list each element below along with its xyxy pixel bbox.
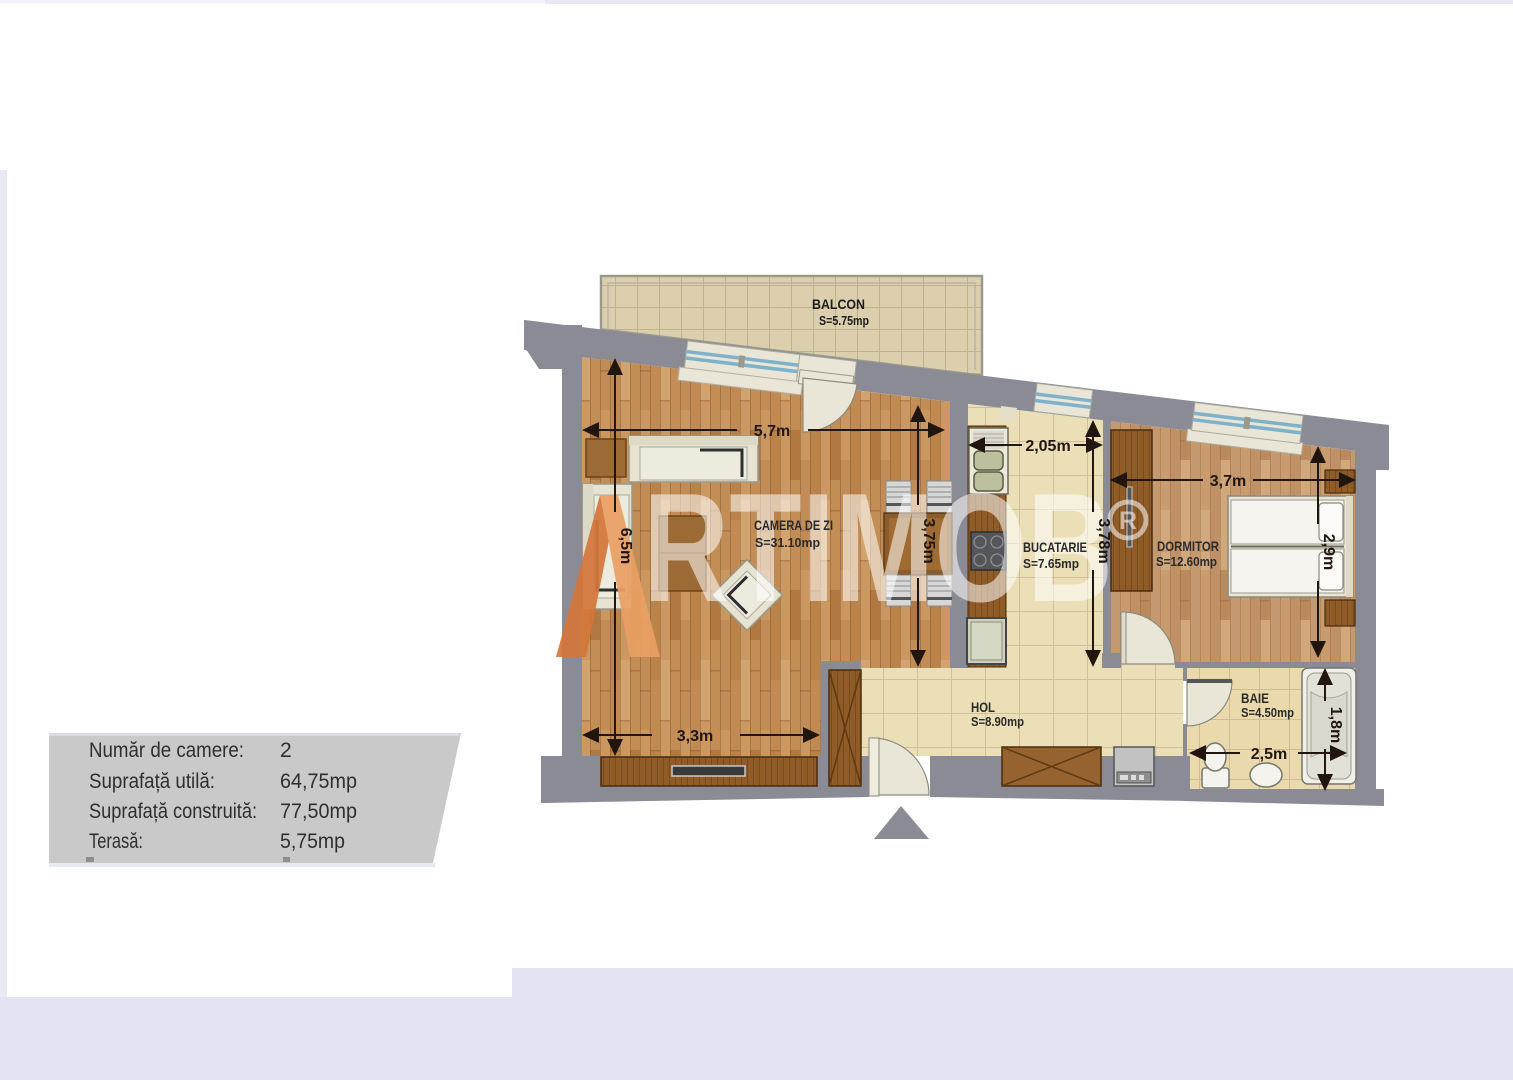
svg-text:S=12.60mp: S=12.60mp <box>1156 554 1217 569</box>
svg-text:BUCATARIE: BUCATARIE <box>1023 539 1087 555</box>
svg-text:Suprafață construită:: Suprafață construită: <box>89 800 257 823</box>
svg-text:S=8.90mp: S=8.90mp <box>971 714 1024 729</box>
svg-text:S=4.50mp: S=4.50mp <box>1241 705 1294 720</box>
svg-text:3,75m: 3,75m <box>920 518 937 563</box>
svg-text:Număr de camere:: Număr de camere: <box>89 739 244 762</box>
svg-text:3,3m: 3,3m <box>677 728 713 745</box>
svg-text:S=7.65mp: S=7.65mp <box>1023 556 1079 571</box>
svg-text:HOL: HOL <box>971 699 995 715</box>
svg-text:64,75mp: 64,75mp <box>280 770 357 793</box>
svg-text:BALCON: BALCON <box>812 296 865 312</box>
svg-text:3,78m: 3,78m <box>1095 518 1112 563</box>
svg-text:77,50mp: 77,50mp <box>280 800 357 823</box>
svg-text:1,8m: 1,8m <box>1327 707 1344 743</box>
svg-text:2,9m: 2,9m <box>1320 534 1337 570</box>
svg-text:Suprafață utilă:: Suprafață utilă: <box>89 770 215 793</box>
svg-text:5,75mp: 5,75mp <box>280 830 345 853</box>
svg-text:2,5m: 2,5m <box>1251 746 1287 763</box>
svg-text:DORMITOR: DORMITOR <box>1157 538 1219 554</box>
svg-text:CAMERA DE ZI: CAMERA DE ZI <box>754 517 833 533</box>
svg-text:BAIE: BAIE <box>1241 690 1269 706</box>
svg-text:2,05m: 2,05m <box>1025 438 1070 455</box>
svg-text:5,7m: 5,7m <box>754 423 790 440</box>
svg-text:Terasă:: Terasă: <box>89 830 143 853</box>
svg-text:6,5m: 6,5m <box>617 528 634 564</box>
svg-text:R: R <box>1119 507 1137 535</box>
svg-text:S=5.75mp: S=5.75mp <box>819 313 869 328</box>
svg-text:3,7m: 3,7m <box>1210 473 1246 490</box>
svg-text:S=31.10mp: S=31.10mp <box>755 535 820 550</box>
svg-text:2: 2 <box>280 739 292 762</box>
